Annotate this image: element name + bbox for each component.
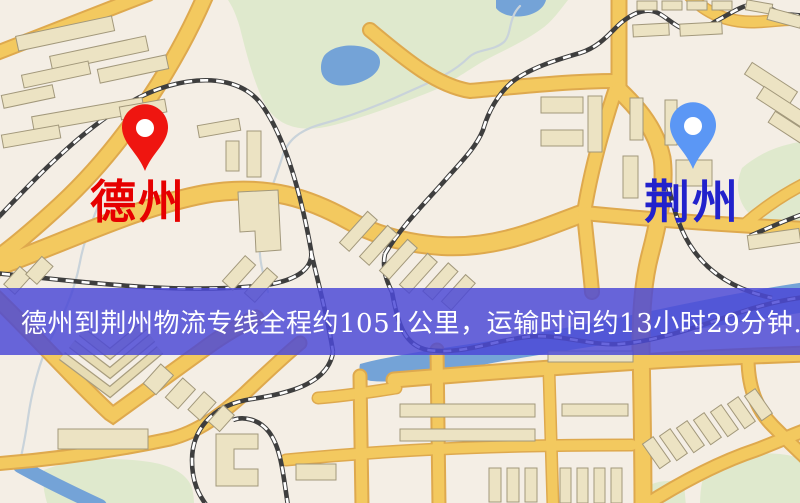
destination-pin-hole — [684, 117, 702, 135]
origin-label: 德州 — [90, 175, 186, 229]
route-banner-text: 德州到荆州物流专线全程约1051公里，运输时间约13小时29分钟. — [21, 303, 800, 340]
origin-pin-hole — [136, 119, 154, 137]
destination-label: 荆州 — [644, 175, 740, 229]
map-image: 德州 荆州 — [0, 0, 800, 503]
route-banner: 德州到荆州物流专线全程约1051公里，运输时间约13小时29分钟. — [0, 288, 800, 355]
map-screenshot: 德州 荆州 德州到荆州物流专线全程约1051公里，运输时间约13小时29分钟. — [0, 0, 800, 503]
